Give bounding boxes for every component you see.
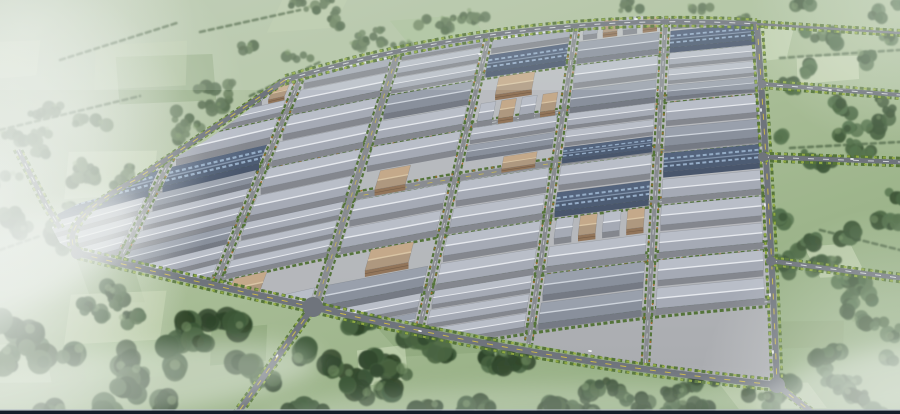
vehicle — [760, 108, 762, 111]
road-intersection — [758, 152, 768, 162]
industrial-park-aerial-render — [0, 0, 900, 414]
vehicle — [850, 158, 853, 160]
render-canvas — [0, 0, 900, 414]
bottom-edge-strip — [0, 409, 900, 414]
vehicle — [764, 203, 766, 206]
road-intersection — [303, 297, 323, 317]
